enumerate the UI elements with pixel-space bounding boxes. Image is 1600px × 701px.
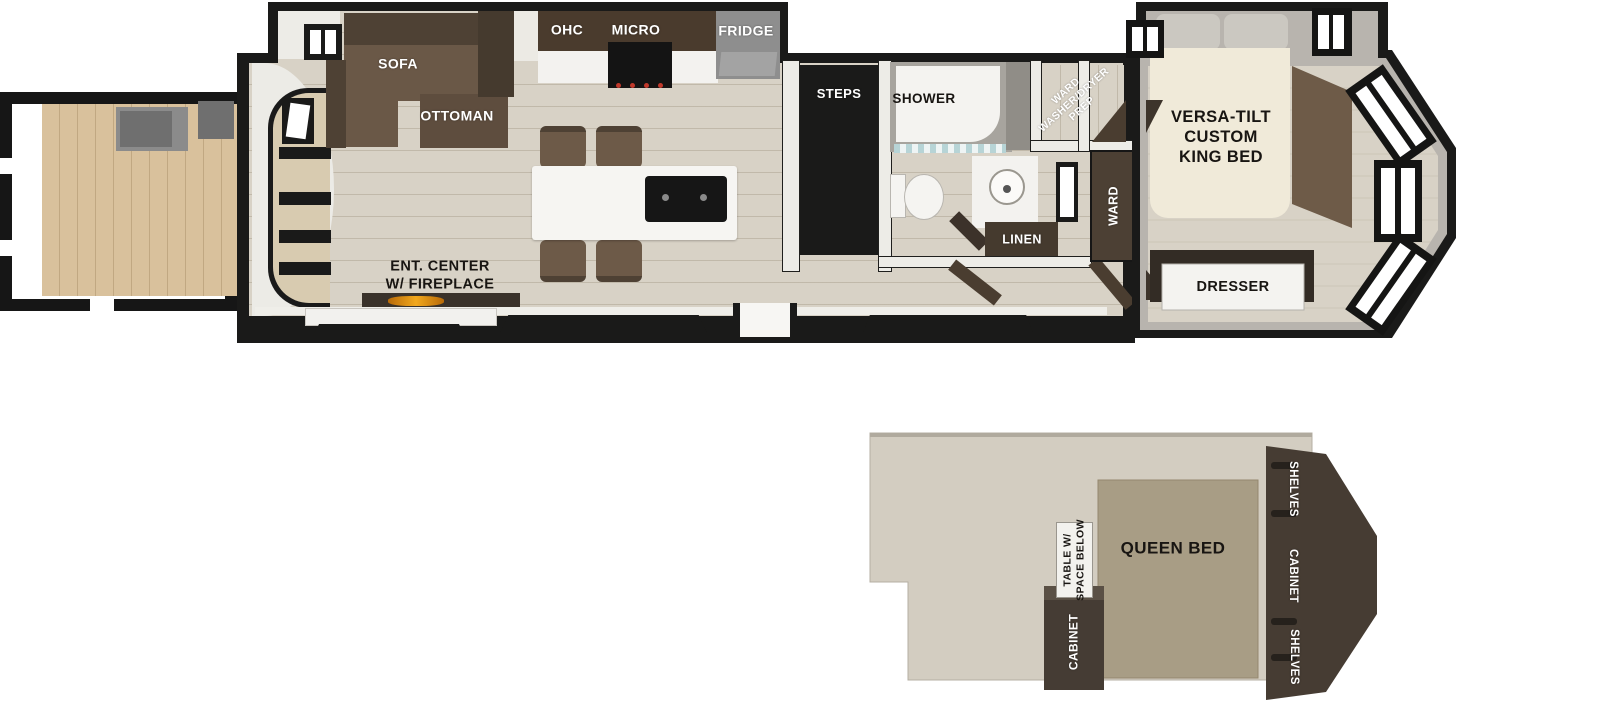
shelves-bottom-label: SHELVES [1287, 629, 1301, 685]
cabinet-right-label: CABINET [1286, 549, 1300, 603]
nose-window-middle [1374, 160, 1422, 242]
ward-label: WARD [1106, 186, 1121, 226]
bed-slide-window [1312, 8, 1352, 56]
queen-bed-label: QUEEN BED [1121, 539, 1226, 560]
sofa-label: SOFA [378, 55, 418, 72]
ent-center-label: ENT. CENTER W/ FIREPLACE [386, 258, 495, 293]
shower-label: SHOWER [892, 91, 955, 107]
micro-label: MICRO [612, 21, 661, 38]
fridge-label: FRIDGE [718, 22, 773, 39]
shelf-slot [1271, 618, 1297, 625]
loft-cabinet-label: CABINET [1067, 614, 1082, 670]
ottoman-label: OTTOMAN [420, 107, 493, 124]
loft-table-label: TABLE W/ SPACE BELOW [1061, 519, 1086, 601]
king-bed-head [1150, 48, 1290, 98]
queen-bed [1098, 480, 1258, 678]
steps-label: STEPS [817, 86, 862, 102]
bedroom-jog-window [1126, 20, 1164, 58]
linen-label: LINEN [1002, 232, 1042, 247]
rv-floorplan: SOFA OTTOMAN OHC MICRO FRIDGE STEPS SHOW… [0, 0, 1600, 701]
pillow [1224, 14, 1288, 50]
shelves-top-label: SHELVES [1286, 461, 1300, 517]
pillow [1156, 14, 1220, 50]
loft-shelves-cabinet-unit [1266, 446, 1377, 700]
king-bed-label: VERSA-TILT CUSTOM KING BED [1171, 107, 1271, 167]
ohc-label: OHC [551, 21, 583, 38]
bedroom-and-loft-shapes [0, 0, 1600, 701]
dresser-label: DRESSER [1197, 279, 1270, 297]
bedroom-wardrobe [1292, 66, 1352, 228]
